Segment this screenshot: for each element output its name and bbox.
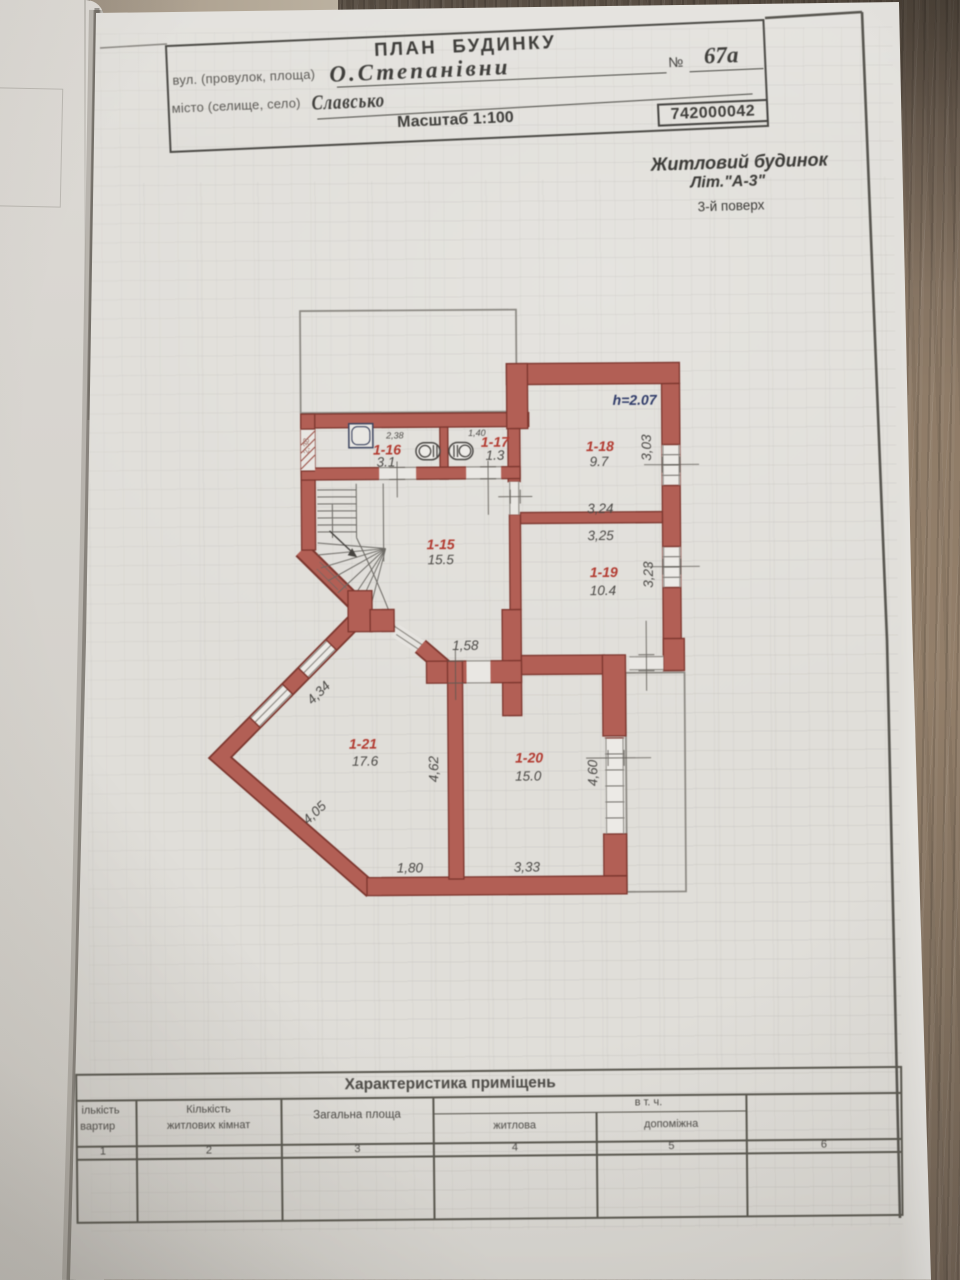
svg-text:4,60: 4,60 bbox=[585, 759, 600, 786]
svg-text:3,33: 3,33 bbox=[514, 859, 541, 874]
svg-text:1-20: 1-20 bbox=[515, 749, 543, 765]
svg-text:1,58: 1,58 bbox=[452, 638, 479, 653]
svg-text:1.3: 1.3 bbox=[486, 448, 505, 463]
svg-text:15.5: 15.5 bbox=[428, 552, 455, 567]
svg-text:1-21: 1-21 bbox=[349, 736, 377, 752]
svg-text:3,25: 3,25 bbox=[587, 528, 614, 543]
svg-text:17.6: 17.6 bbox=[352, 754, 379, 769]
svg-text:3,23: 3,23 bbox=[641, 561, 656, 588]
svg-text:3,03: 3,03 bbox=[639, 434, 654, 461]
svg-text:h=2.07: h=2.07 bbox=[613, 392, 658, 408]
svg-text:3,24: 3,24 bbox=[587, 501, 613, 516]
svg-text:3.1: 3.1 bbox=[377, 454, 396, 469]
svg-text:1,40: 1,40 bbox=[468, 428, 486, 438]
svg-text:4,34: 4,34 bbox=[304, 678, 333, 707]
svg-text:15.0: 15.0 bbox=[515, 768, 542, 783]
svg-text:2,38: 2,38 bbox=[302, 438, 311, 455]
svg-text:1-15: 1-15 bbox=[427, 536, 455, 552]
svg-text:9.7: 9.7 bbox=[590, 454, 609, 469]
svg-text:10.4: 10.4 bbox=[590, 583, 616, 598]
svg-text:1,80: 1,80 bbox=[397, 860, 424, 875]
svg-text:1-19: 1-19 bbox=[590, 564, 618, 580]
svg-text:1-18: 1-18 bbox=[586, 438, 614, 454]
svg-text:4,62: 4,62 bbox=[426, 756, 441, 783]
svg-text:2,38: 2,38 bbox=[385, 430, 404, 440]
